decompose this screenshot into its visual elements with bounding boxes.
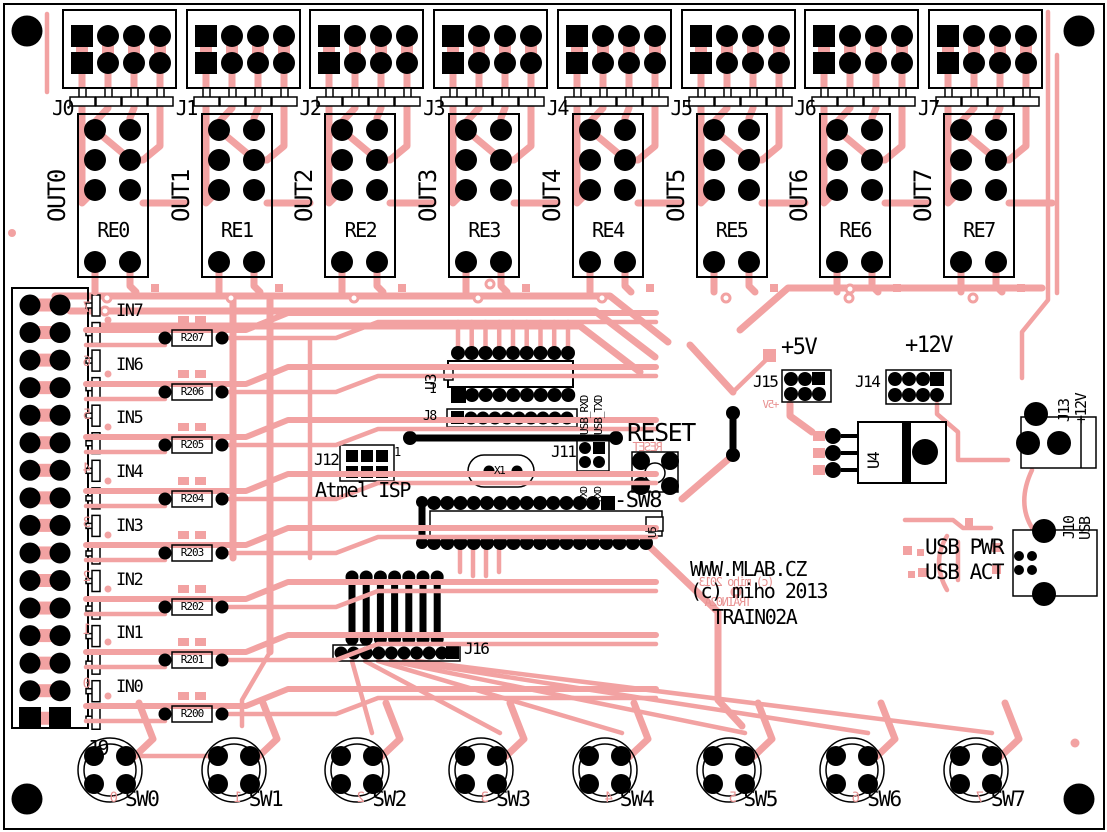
board-outline	[3, 3, 1105, 830]
pcb-board: J0 OUT0 RE0	[0, 0, 1107, 832]
